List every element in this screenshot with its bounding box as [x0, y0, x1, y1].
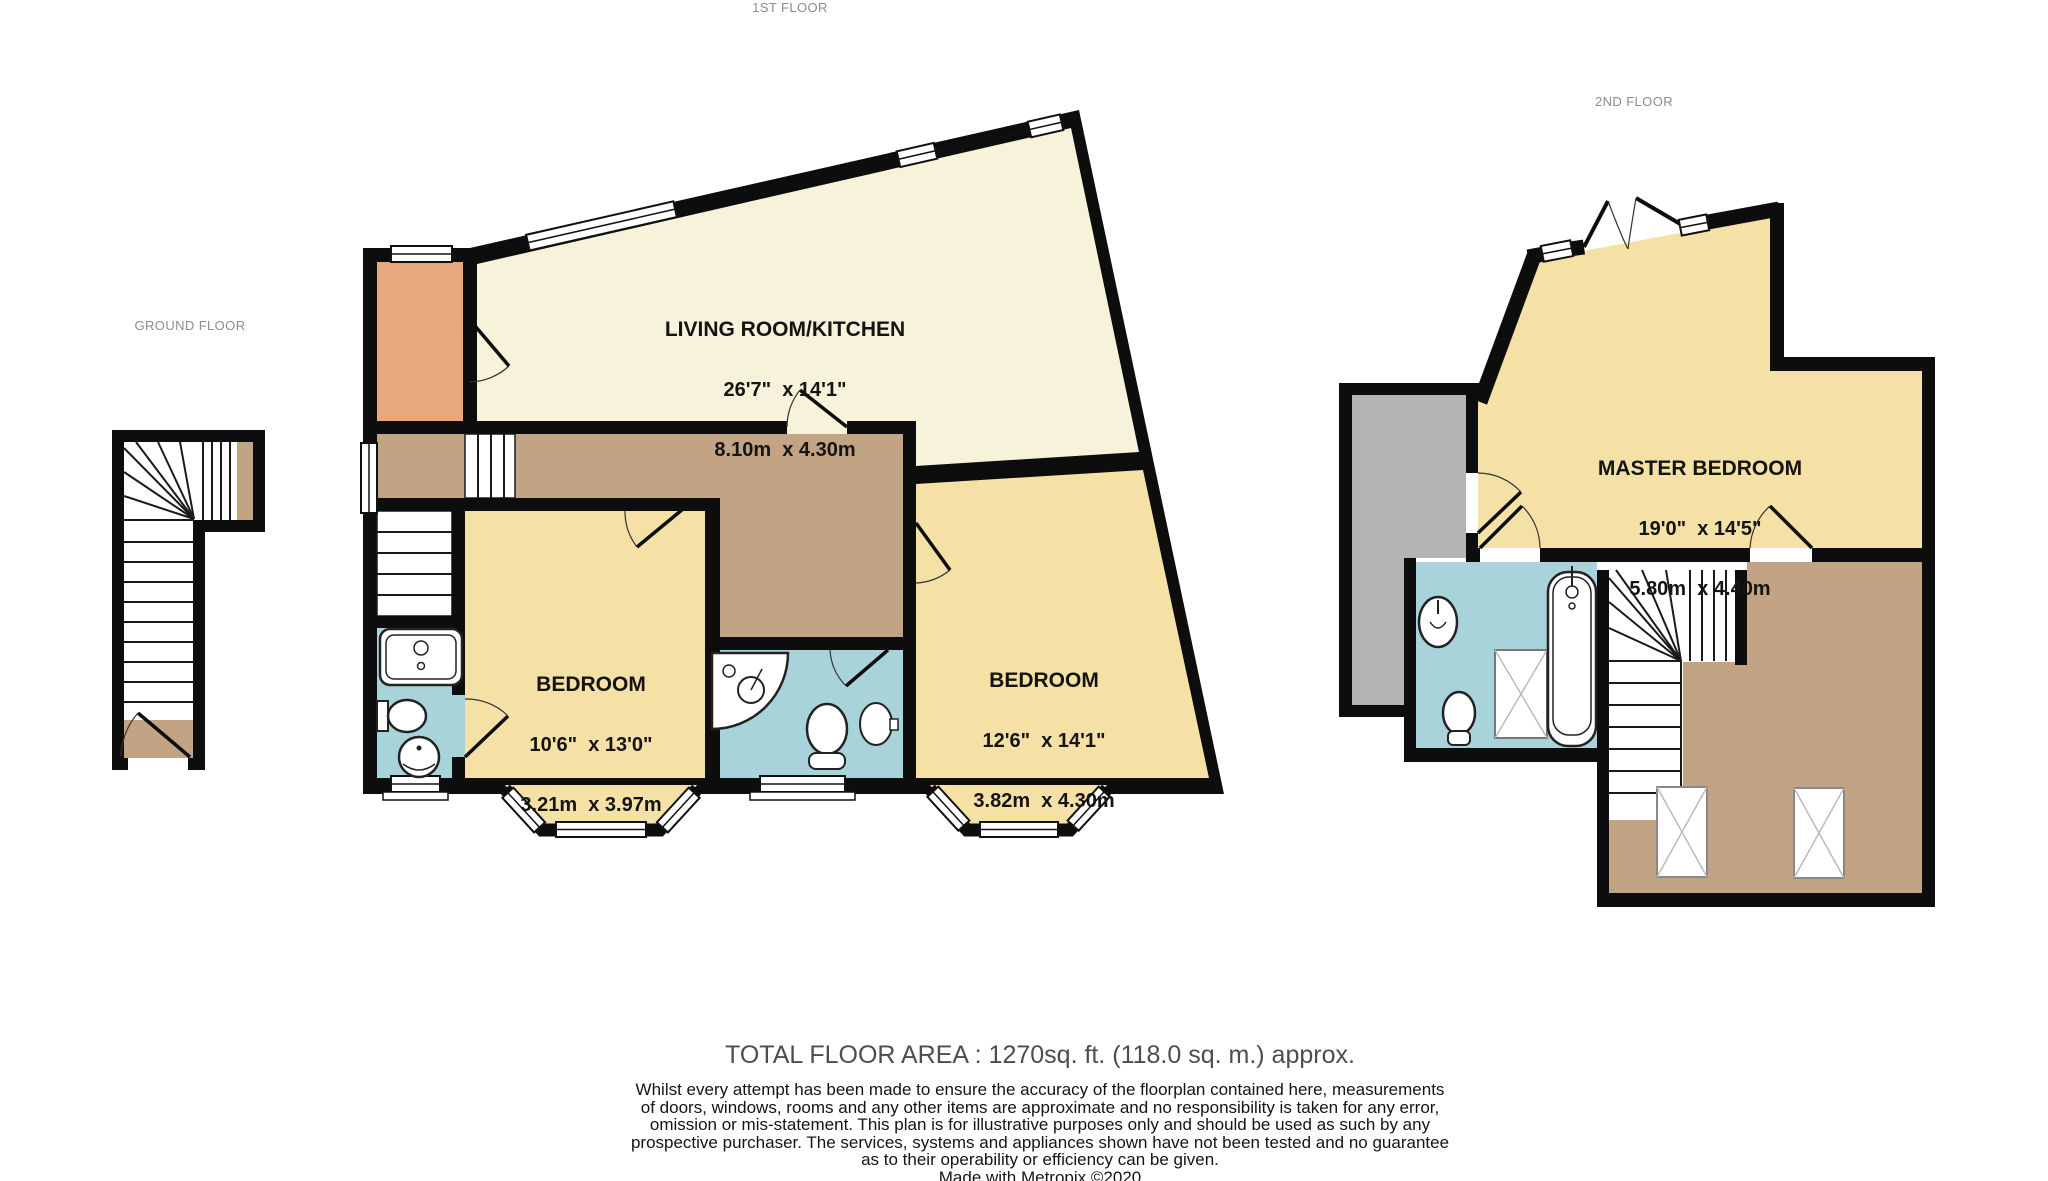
- room-name: LIVING ROOM/KITCHEN: [665, 317, 905, 342]
- room-dims-imperial: 12'6" x 14'1": [973, 729, 1114, 753]
- room-label-bedroom-2: BEDROOM 12'6" x 14'1" 3.82m x 4.30m: [973, 632, 1114, 849]
- second-bathroom-sink: [1419, 597, 1457, 647]
- room-label-living-room: LIVING ROOM/KITCHEN 26'7" x 14'1" 8.10m …: [665, 281, 905, 498]
- first-floor-stairs-upper: [465, 434, 515, 498]
- room-dims-metric: 8.10m x 4.30m: [665, 438, 905, 462]
- room-dims-imperial: 19'0" x 14'5": [1598, 517, 1802, 541]
- bathroom-toilet: [807, 704, 847, 769]
- ensuite-toilet: [377, 700, 426, 732]
- room-name: BEDROOM: [973, 668, 1114, 693]
- skylight-2: [1794, 788, 1844, 878]
- ensuite-bathtub: [380, 629, 462, 685]
- room-dims-metric: 3.82m x 4.30m: [973, 789, 1114, 813]
- footer: TOTAL FLOOR AREA : 1270sq. ft. (118.0 sq…: [490, 1042, 1590, 1181]
- shower-tray: [1495, 650, 1547, 738]
- ground-floor-plan: [112, 430, 265, 772]
- ground-landing-strip: [237, 442, 253, 520]
- first-floor-label: 1ST FLOOR: [752, 0, 828, 15]
- ensuite-sink: [399, 737, 439, 777]
- room-dims-imperial: 10'6" x 13'0": [520, 733, 661, 757]
- skylight-1: [1657, 787, 1707, 877]
- second-bathroom-toilet: [1443, 692, 1475, 745]
- disclaimer-text: Whilst every attempt has been made to en…: [490, 1081, 1590, 1169]
- room-label-bedroom-1: BEDROOM 10'6" x 13'0" 3.21m x 3.97m: [520, 636, 661, 853]
- entrance-room-floor: [377, 262, 463, 421]
- ground-floor-label: GROUND FLOOR: [135, 318, 246, 333]
- total-floor-area: TOTAL FLOOR AREA : 1270sq. ft. (118.0 sq…: [490, 1042, 1590, 1068]
- second-bathtub: [1548, 566, 1596, 746]
- floorplan-page: 1ST FLOOR 2ND FLOOR GROUND FLOOR LIVING …: [0, 0, 2048, 1181]
- metropix-credit: Made with Metropix ©2020: [490, 1169, 1590, 1181]
- room-name: BEDROOM: [520, 672, 661, 697]
- room-dims-metric: 3.21m x 3.97m: [520, 793, 661, 817]
- second-floor-label: 2ND FLOOR: [1595, 94, 1673, 109]
- room-label-master-bedroom: MASTER BEDROOM 19'0" x 14'5" 5.80m x 4.4…: [1598, 420, 1802, 637]
- room-dims-imperial: 26'7" x 14'1": [665, 378, 905, 402]
- first-floor-stairs-lower: [377, 511, 452, 616]
- room-dims-metric: 5.80m x 4.40m: [1598, 577, 1802, 601]
- room-name: MASTER BEDROOM: [1598, 456, 1802, 481]
